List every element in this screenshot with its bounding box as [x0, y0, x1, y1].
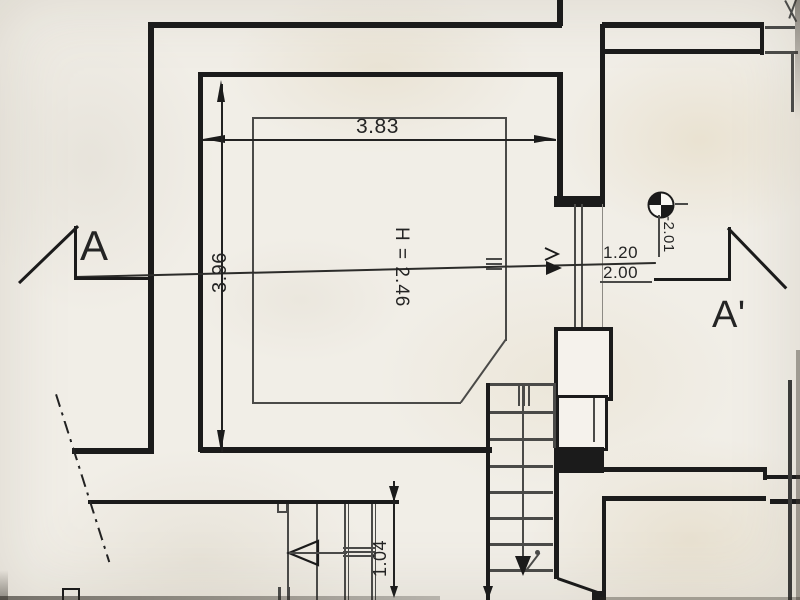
stair2-walk-line: [289, 552, 347, 554]
wall-right-edge-lower: [788, 380, 792, 600]
dim-width-arrow-right: [534, 135, 556, 143]
corridor-end-cap: [554, 196, 605, 207]
corridor-west-wall-lower: [557, 72, 563, 196]
section-label-a: A: [80, 222, 109, 270]
section-tick: [486, 268, 502, 270]
scanned-floor-plan: A A' 3.83 3.96 H = 2.46 1.20 2.00 1.04 -…: [0, 0, 800, 600]
section-a-vertical: [74, 226, 77, 279]
stair2-direction-arrow-icon: [286, 539, 320, 569]
wall-south: [200, 447, 492, 453]
scan-edge-bottom: [0, 596, 440, 600]
scan-edge-right-top: [795, 0, 800, 120]
door-panel: [556, 395, 608, 451]
wall-northeast-ext-upper: [765, 26, 795, 29]
opening-upper-label: 1.20: [603, 243, 638, 263]
section-label-a-prime: A': [712, 294, 746, 337]
room-se-west-wall: [602, 501, 606, 600]
inner-outline-left: [252, 117, 254, 404]
stair-break-mark: [528, 386, 530, 406]
dim-depth-arrow-top: [217, 80, 225, 102]
section-tick: [486, 258, 502, 260]
dim-depth-arrow-bottom: [217, 430, 225, 452]
wall-bottom-room: [88, 500, 399, 504]
scan-smudge-bottom-left: [0, 570, 8, 600]
opening-lower-label: 2.00: [603, 263, 638, 283]
wall-chunk-east: [554, 447, 604, 473]
wall-right-edge-upper: [791, 54, 794, 112]
wall-west-inner: [198, 72, 203, 452]
wall-west-stub: [72, 448, 154, 454]
wall-north-outer: [148, 22, 562, 28]
wall-northeast-lower: [602, 49, 764, 54]
wall-northeast-cap: [760, 25, 764, 55]
inner-outline-bottom: [252, 402, 461, 404]
level-label: -2.01: [660, 216, 677, 253]
stair-arrow-dot: [535, 550, 540, 555]
boundary-dashdot-line: [55, 394, 110, 562]
level-benchmark-line: [675, 203, 688, 205]
section-a-horizontal: [74, 277, 150, 280]
corridor2-wall-upper: [602, 467, 765, 472]
wall-pillar: [554, 327, 613, 401]
section-cut-line: [75, 262, 656, 278]
opening-lower-underline: [600, 281, 652, 283]
section-a-prime-diagonal: [727, 227, 787, 289]
stair-break-mark: [518, 386, 520, 406]
section-open-arrow-icon: [544, 247, 560, 261]
scan-edge-right-bottom: [796, 350, 800, 600]
stair-shaft-east-wall: [554, 473, 559, 579]
stair-walk-line: [522, 384, 524, 558]
room-height-label: H = 2.46: [390, 227, 412, 307]
door-panel-inner-line: [593, 398, 595, 442]
inner-outline-chamfer: [460, 338, 507, 402]
dim-stair-arrow-top: [389, 486, 399, 502]
stair-shaft-east-line: [553, 383, 556, 448]
stair-exit-arrow-icon: [483, 586, 493, 600]
window-glazing-line-1: [574, 204, 576, 330]
window-glazing-line-2: [581, 204, 583, 330]
section-a-prime-horizontal: [654, 278, 731, 281]
dim-width-line: [203, 139, 556, 141]
wall-northeast-upper: [602, 22, 764, 28]
dim-width-label: 3.83: [356, 115, 399, 139]
section-filled-arrow-icon: [546, 261, 562, 275]
corridor2-wall-lower: [602, 496, 766, 501]
inner-outline-right: [505, 117, 507, 341]
dim-depth-label: 3.96: [209, 252, 232, 293]
wall-west-outer: [148, 22, 154, 454]
section-a-prime-vertical: [728, 227, 731, 280]
section-tick: [486, 263, 502, 265]
corridor-west-wall-upper: [557, 0, 563, 26]
dim-stair-label: 1.04: [370, 540, 391, 577]
wall-north-inner: [198, 72, 560, 77]
section-a-diagonal: [18, 225, 79, 284]
